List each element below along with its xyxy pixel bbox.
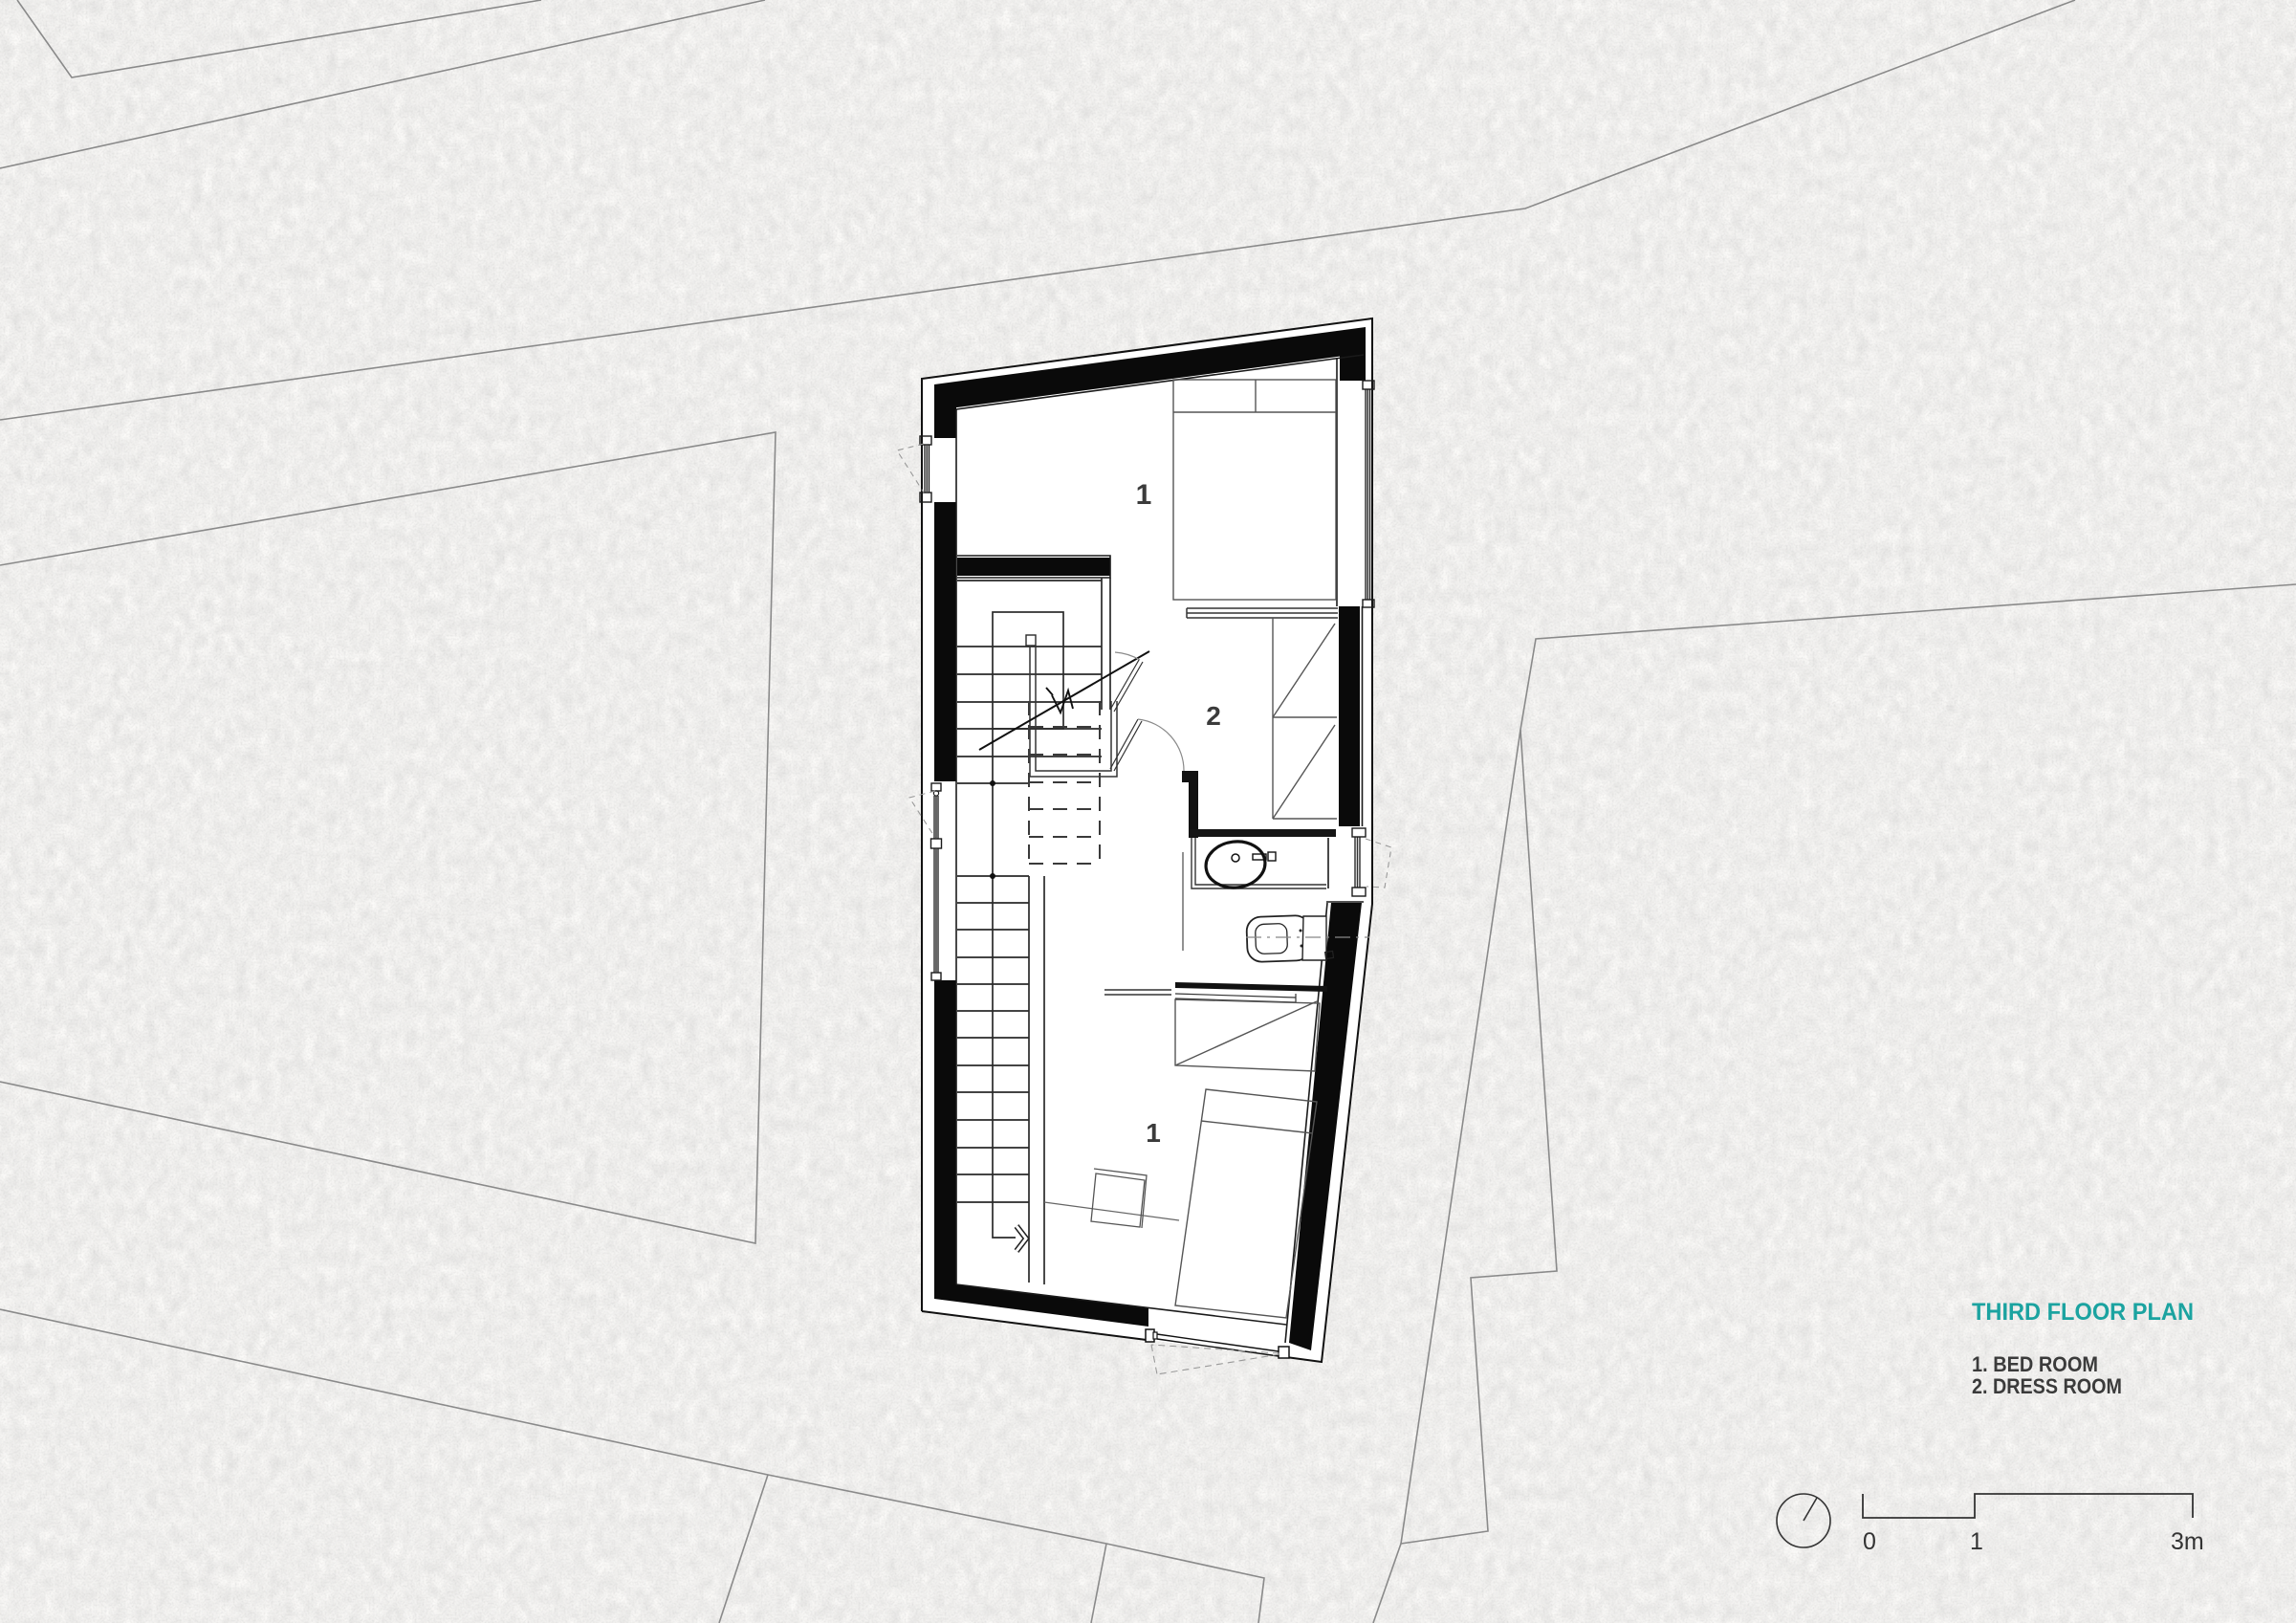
svg-text:THIRD FLOOR PLAN: THIRD FLOOR PLAN — [1972, 1299, 2194, 1326]
svg-text:1. BED ROOM: 1. BED ROOM — [1972, 1352, 2098, 1376]
svg-text:1: 1 — [1146, 1118, 1161, 1148]
svg-text:1: 1 — [1136, 479, 1152, 511]
svg-text:1: 1 — [1970, 1528, 1983, 1555]
svg-text:2: 2 — [1206, 701, 1221, 731]
svg-text:2. DRESS ROOM: 2. DRESS ROOM — [1972, 1374, 2122, 1398]
svg-text:0: 0 — [1863, 1528, 1876, 1555]
svg-text:3m: 3m — [2171, 1528, 2204, 1555]
